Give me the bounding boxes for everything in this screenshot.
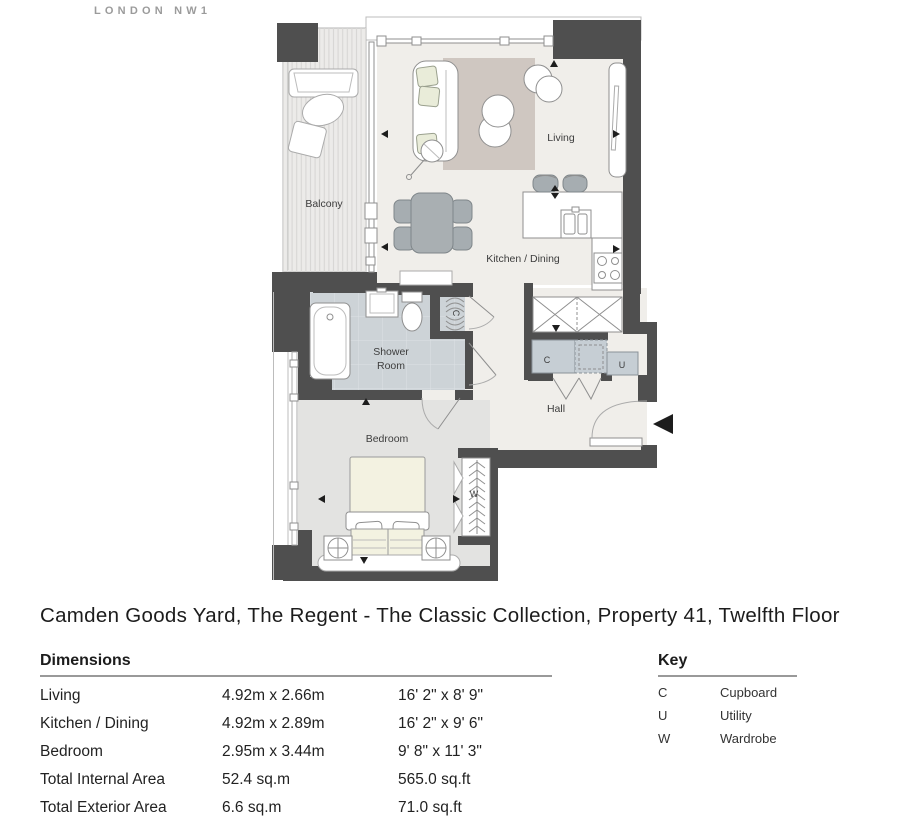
plan-title: Camden Goods Yard, The Regent - The Clas… [40,604,840,628]
metric-size: 52.4 sq.m [222,771,398,789]
entrance-arrow [653,414,673,434]
table-row: Total Exterior Area 6.6 sq.m 71.0 sq.ft [40,794,552,816]
bedside-table-left [324,536,352,560]
imperial-size: 71.0 sq.ft [398,799,552,816]
bathtub [310,303,350,379]
table-row: Living 4.92m x 2.66m 16' 2" x 8' 9" [40,682,552,710]
nesting-tables [479,95,514,147]
closet-c-label: C [451,310,461,317]
tv-bench [400,271,452,285]
table-row: Total Internal Area 52.4 sq.m 565.0 sq.f… [40,766,552,794]
balcony-bench [289,69,358,97]
table-row: Kitchen / Dining 4.92m x 2.89m 16' 2" x … [40,710,552,738]
balcony-label: Balcony [305,198,343,210]
metric-size: 4.92m x 2.89m [222,715,398,733]
balcony [283,28,366,272]
imperial-size: 16' 2" x 8' 9" [398,687,552,705]
dining-set [394,193,472,253]
dining-table [411,193,453,253]
utility-u-label: U [619,360,626,370]
bedside-table-right [422,536,450,560]
key-symbol: U [658,708,720,723]
media-unit [609,63,626,177]
bedroom-label: Bedroom [366,433,409,445]
hall-cupboard [532,340,575,373]
room-name: Living [40,687,222,705]
hall-cupboard-c-label: C [544,355,551,365]
room-name: Kitchen / Dining [40,715,222,733]
key-symbol: W [658,731,720,746]
dimensions-table: Dimensions Living 4.92m x 2.66m 16' 2" x… [40,652,552,816]
metric-size: 6.6 sq.m [222,799,398,816]
key-heading: Key [658,652,797,677]
key-label: Wardrobe [720,731,797,746]
key-symbol: C [658,685,720,700]
imperial-size: 16' 2" x 9' 6" [398,715,552,733]
toilet [402,292,422,331]
key-rows: C Cupboard U Utility W Wardrobe [658,681,797,750]
imperial-size: 565.0 sq.ft [398,771,552,789]
room-name: Total Exterior Area [40,799,222,816]
metric-size: 2.95m x 3.44m [222,743,398,761]
list-item: C Cupboard [658,681,797,704]
metric-size: 4.92m x 2.66m [222,687,398,705]
bed [346,457,429,558]
key-label: Cupboard [720,685,797,700]
balcony-door-window [365,42,377,272]
wardrobe-w-label: W [470,489,479,499]
room-name: Bedroom [40,743,222,761]
sink [561,207,591,238]
list-item: W Wardrobe [658,727,797,750]
floor-plan: Balcony Living Kitchen / Dining Shower R… [0,0,921,600]
basin [366,288,398,317]
key-legend: Key C Cupboard U Utility W Wardrobe [658,652,797,750]
living-label: Living [547,132,575,144]
dimensions-heading: Dimensions [40,652,552,677]
dimensions-rows: Living 4.92m x 2.66m 16' 2" x 8' 9" Kitc… [40,682,552,816]
hall-label: Hall [547,403,565,415]
shower-room-label-line2: Room [377,360,405,372]
base-units [533,297,622,332]
list-item: U Utility [658,704,797,727]
kitchen-dining-label: Kitchen / Dining [486,253,560,265]
room-name: Total Internal Area [40,771,222,789]
cooktop [594,253,622,283]
table-row: Bedroom 2.95m x 3.44m 9' 8" x 11' 3" [40,738,552,766]
shower-room-label-line1: Shower [373,346,409,358]
imperial-size: 9' 8" x 11' 3" [398,743,552,761]
key-label: Utility [720,708,797,723]
